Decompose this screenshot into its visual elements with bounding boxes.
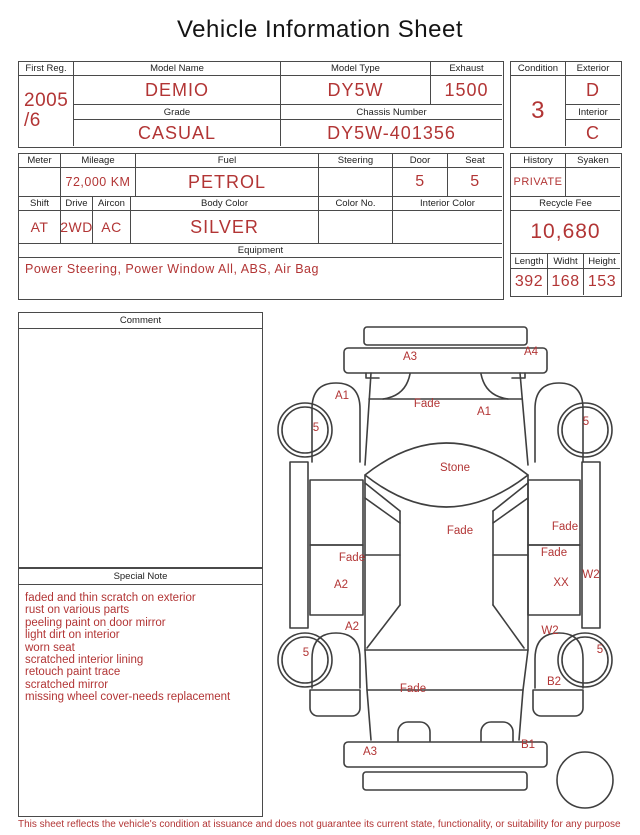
special-note-line: peeling paint on door mirror (25, 617, 256, 629)
color-no-value (319, 211, 393, 244)
car-outline-svg (270, 315, 625, 820)
special-note-box: Special Note faded and thin scratch on e… (18, 568, 263, 817)
damage-label-left-fender-a1: A1 (335, 390, 349, 402)
interior-color-value (393, 211, 502, 244)
color-no-label: Color No. (319, 197, 393, 211)
damage-label-right-door-fade2: Fade (541, 547, 567, 559)
exterior-label: Exterior (566, 62, 620, 76)
special-note-line: faded and thin scratch on exterior (25, 592, 256, 604)
steering-label: Steering (319, 154, 393, 168)
special-note-line: light dirt on interior (25, 629, 256, 641)
recycle-fee-value: 10,680 (511, 211, 620, 254)
damage-label-rear-bumper-a3: A3 (363, 746, 377, 758)
comment-body (19, 328, 262, 567)
special-note-line: retouch paint trace (25, 666, 256, 678)
special-note-line: rust on various parts (25, 604, 256, 616)
first-reg-label: First Reg. (19, 62, 74, 76)
damage-label-left-quarter-a2: A2 (345, 621, 359, 633)
damage-label-right-door-xx: XX (553, 577, 568, 589)
recycle-fee-label: Recycle Fee (511, 197, 620, 211)
special-note-list: faded and thin scratch on exterior rust … (19, 584, 262, 816)
meter-value (19, 168, 61, 197)
damage-label-windshield-stone: Stone (440, 462, 470, 474)
shift-value: AT (19, 211, 61, 244)
equipment-value: Power Steering, Power Window All, ABS, A… (19, 258, 502, 298)
damage-label-wheel-rr-5: 5 (597, 644, 603, 656)
condition-table: Condition 3 Exterior D Interior C (510, 61, 622, 148)
special-note-line: missing wheel cover-needs replacement (25, 691, 256, 703)
history-value: PRIVATE (511, 168, 566, 197)
special-note-line: worn seat (25, 642, 256, 654)
door-label: Door (393, 154, 448, 168)
exhaust-label: Exhaust (431, 62, 502, 76)
model-type-value: DY5W (281, 76, 431, 105)
damage-label-front-bumper-a3: A3 (403, 351, 417, 363)
drive-label: Drive (61, 197, 93, 211)
identity-table: First Reg. 2005/6 Model Name DEMIO Model… (18, 61, 504, 148)
damage-label-front-bumper-a4: A4 (524, 346, 538, 358)
mileage-label: Mileage (61, 154, 136, 168)
body-color-label: Body Color (131, 197, 319, 211)
interior-label: Interior (566, 105, 620, 120)
chassis-number-label: Chassis Number (281, 105, 502, 120)
syaken-value (566, 168, 620, 197)
fuel-label: Fuel (136, 154, 319, 168)
damage-label-wheel-fr-5: 5 (583, 416, 589, 428)
damage-label-hood-fade: Fade (414, 398, 440, 410)
exhaust-value: 1500 (431, 76, 502, 105)
first-reg-value: 2005/6 (19, 76, 74, 146)
page-title: Vehicle Information Sheet (0, 16, 640, 44)
history-label: History (511, 154, 566, 168)
width-label: Widht (548, 254, 584, 269)
interior-value: C (566, 120, 620, 146)
damage-label-wheel-rl-5: 5 (303, 647, 309, 659)
damage-label-roof-fade: Fade (447, 525, 473, 537)
damage-label-left-door-fade: Fade (339, 552, 365, 564)
damage-label-left-door-a2: A2 (334, 579, 348, 591)
syaken-label: Syaken (566, 154, 620, 168)
damage-label-right-sill-w2: W2 (582, 569, 599, 581)
damage-label-wheel-fl-5: 5 (313, 422, 319, 434)
tailgate-shape (367, 690, 523, 741)
width-value: 168 (548, 269, 584, 295)
model-name-label: Model Name (74, 62, 281, 76)
condition-value: 3 (511, 76, 566, 146)
grade-label: Grade (74, 105, 281, 120)
chassis-number-value: DY5W-401356 (281, 120, 502, 146)
steering-value (319, 168, 393, 197)
length-value: 392 (511, 269, 548, 295)
mileage-value: 72,000 KM (61, 168, 136, 197)
model-type-label: Model Type (281, 62, 431, 76)
model-name-value: DEMIO (74, 76, 281, 105)
shift-label: Shift (19, 197, 61, 211)
drive-value: 2WD (61, 211, 93, 244)
damage-label-right-door-fade: Fade (552, 521, 578, 533)
interior-color-label: Interior Color (393, 197, 502, 211)
fuel-value: PETROL (136, 168, 319, 197)
height-value: 153 (584, 269, 620, 295)
comment-box: Comment (18, 312, 263, 568)
damage-label-right-quarter-w2: W2 (541, 625, 558, 637)
comment-label: Comment (19, 313, 262, 329)
length-label: Length (511, 254, 548, 269)
special-note-line: scratched mirror (25, 679, 256, 691)
spare-wheel-shape (557, 752, 613, 808)
height-label: Height (584, 254, 620, 269)
door-value: 5 (393, 168, 448, 197)
windshield-shape (365, 443, 528, 507)
vehicle-information-sheet: Vehicle Information Sheet First Reg. 200… (0, 0, 640, 835)
damage-label-rear-bumper-b1: B1 (521, 739, 535, 751)
disclaimer-text: This sheet reflects the vehicle's condit… (18, 819, 628, 830)
damage-label-hood-a1: A1 (477, 406, 491, 418)
meter-label: Meter (19, 154, 61, 168)
damage-label-rear-window-fade: Fade (400, 683, 426, 695)
rear-window-shape (365, 650, 528, 690)
aircon-label: Aircon (93, 197, 131, 211)
roof-shape (365, 475, 528, 650)
front-bumper-shape (344, 327, 547, 378)
damage-label-right-quarter-b2: B2 (547, 676, 561, 688)
history-fee-table: History Syaken PRIVATE Recycle Fee 10,68… (510, 153, 622, 297)
seat-label: Seat (448, 154, 502, 168)
aircon-value: AC (93, 211, 131, 244)
exterior-value: D (566, 76, 620, 105)
hood-shape (365, 373, 528, 465)
condition-label: Condition (511, 62, 566, 76)
equipment-label: Equipment (19, 244, 502, 258)
car-damage-diagram: A3 A4 A1 Fade A1 5 5 Stone Fade Fade Fad… (270, 315, 625, 820)
special-note-label: Special Note (19, 569, 262, 585)
spec-table: Meter Mileage 72,000 KM Fuel PETROL Stee… (18, 153, 504, 300)
special-note-line: scratched interior lining (25, 654, 256, 666)
body-color-value: SILVER (131, 211, 319, 244)
seat-value: 5 (448, 168, 502, 197)
grade-value: CASUAL (74, 120, 281, 146)
